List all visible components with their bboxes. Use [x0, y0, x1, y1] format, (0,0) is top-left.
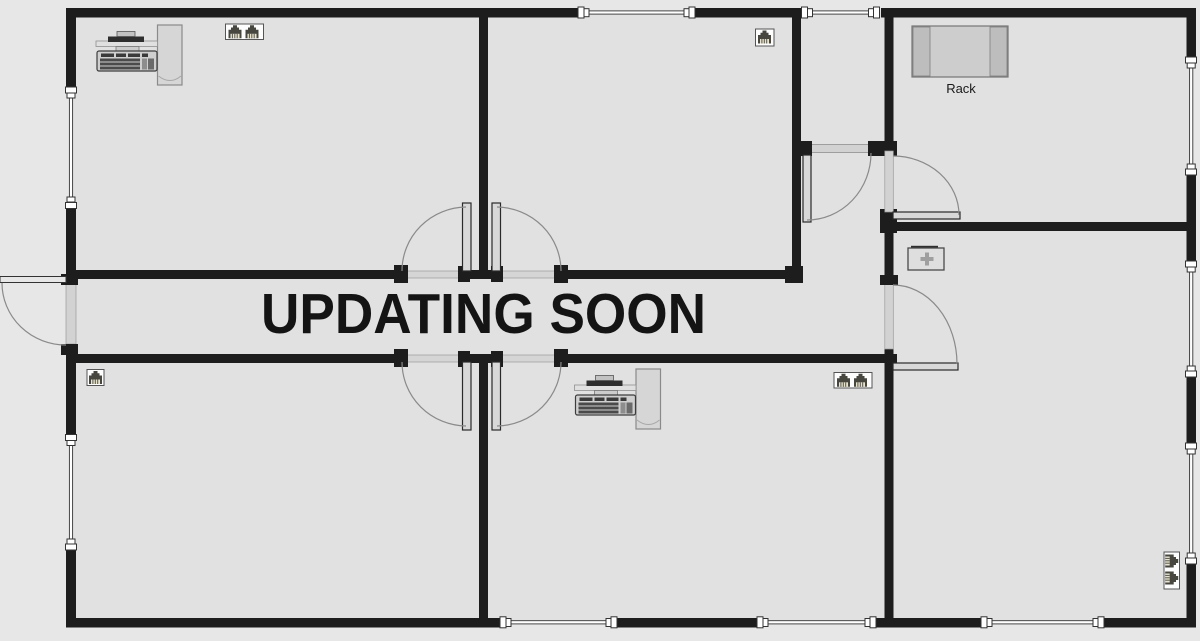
svg-text:Rack: Rack [946, 81, 976, 96]
svg-text:UPDATING SOON: UPDATING SOON [261, 282, 706, 345]
